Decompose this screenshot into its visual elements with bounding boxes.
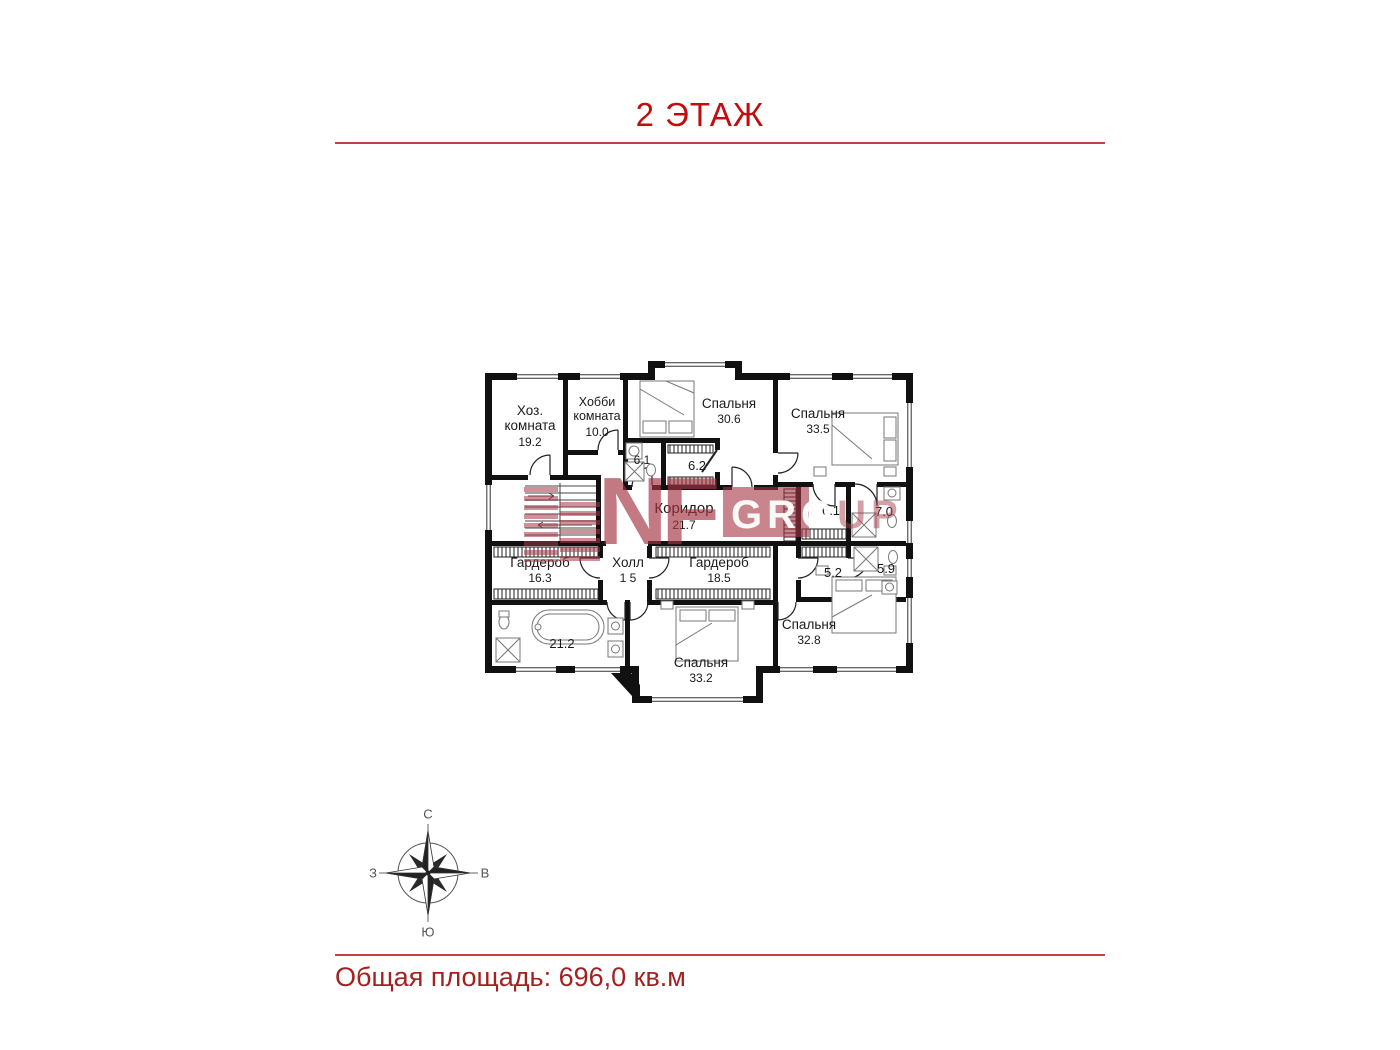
bottom-divider-line [335,954,1105,956]
compass-east-label: В [481,866,490,881]
top-divider-line [335,142,1105,144]
room-label-utility-room: Хоз. комната 19.2 [504,403,555,449]
room-label-closet-5-2: 5.2 [824,564,842,581]
compass-north-label: С [423,807,432,822]
compass-south-label: Ю [421,925,434,940]
room-label-bath-6-1: 6.1 [634,452,651,468]
room-label-wardrobe-18-5: Гардероб 18.5 [689,555,748,586]
room-label-corridor: Коридор 21.7 [654,500,713,533]
room-label-bath-7-0: 7.0 [875,503,893,520]
room-label-closet-6-2: 6.2 [688,457,706,474]
room-label-bedroom-32-8: Спальня 32.8 [782,617,836,648]
room-label-bath-5-9: 5.9 [877,560,895,577]
page-title: 2 ЭТАЖ [0,96,1400,134]
room-label-bath-21-2: 21.2 [549,635,574,652]
compass-west-label: З [369,866,377,881]
room-label-hobby-room: Хобби комната 10.0 [573,395,620,439]
room-label-wardrobe-16-3: Гардероб 16.3 [510,555,569,586]
room-label-bedroom-33-5: Спальня 33.5 [791,406,845,437]
page: { "page": { "title": "2 ЭТАЖ", "footer_t… [0,0,1400,1050]
room-label-closet-6-1-right: 6.1 [822,502,840,519]
total-area-text: Общая площадь: 696,0 кв.м [335,962,686,993]
room-label-hall: Холл 1 5 [612,555,644,586]
compass-rose: С Ю З В [365,800,495,950]
staircase [525,483,596,541]
wardrobe-shelving-vertical [784,489,796,541]
room-label-bedroom-33-2: Спальня 33.2 [674,655,728,686]
room-label-bedroom-30-6: Спальня 30.6 [702,396,756,427]
floor-plan: Хоз. комната 19.2 Хобби комната 10.0 Спа… [480,355,920,723]
